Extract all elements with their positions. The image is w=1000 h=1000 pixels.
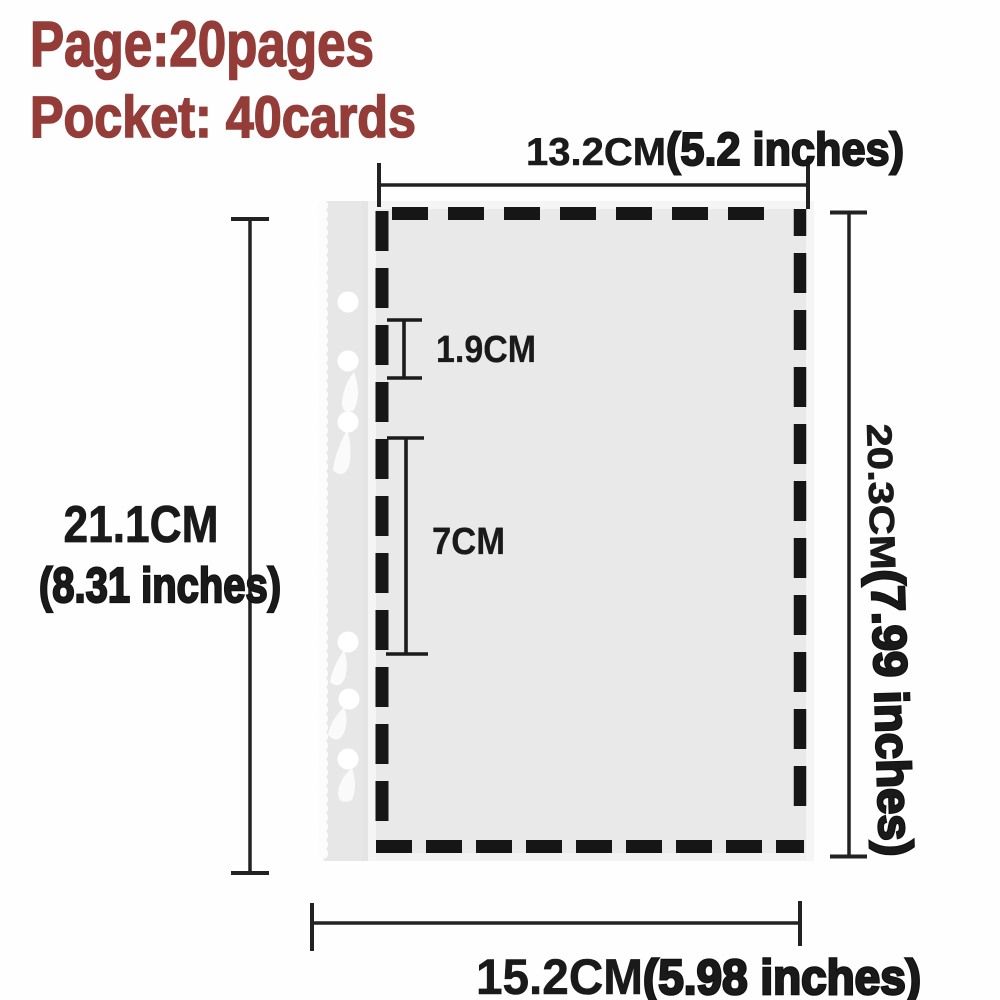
svg-text:1.9CM: 1.9CM (436, 329, 536, 371)
svg-text:Pocket: 40cards: Pocket: 40cards (30, 85, 416, 150)
svg-text:13.2CM(5.2 inches): 13.2CM(5.2 inches) (526, 123, 904, 175)
svg-text:(8.31 inches): (8.31 inches) (39, 559, 281, 613)
svg-text:21.1CM: 21.1CM (64, 496, 219, 554)
svg-text:Page:20pages: Page:20pages (30, 8, 374, 80)
svg-text:7CM: 7CM (432, 521, 505, 563)
svg-text:15.2CM(5.98 inches): 15.2CM(5.98 inches) (476, 949, 921, 1000)
